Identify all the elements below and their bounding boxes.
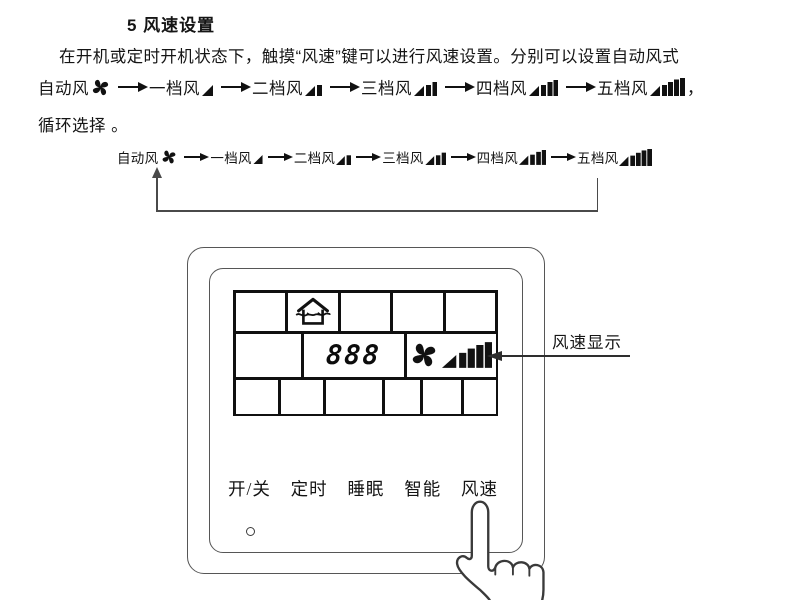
lcd-row-middle: 888 — [236, 334, 496, 377]
callout-arrowhead — [487, 351, 502, 361]
mode-label: 四档风 — [476, 75, 527, 99]
arrow-icon — [118, 86, 139, 88]
display-cell — [423, 380, 461, 414]
fan-speed-display-cell — [407, 334, 496, 377]
lcd-display-grid: 888 — [233, 290, 498, 416]
cycle-return-line-left — [156, 176, 158, 211]
arrow-icon — [451, 156, 468, 158]
arrow-icon — [566, 86, 587, 88]
mode-label: 三档风 — [382, 147, 423, 167]
mode-label: 自动风 — [117, 147, 158, 167]
mode-label: 二档风 — [294, 147, 335, 167]
cycle-diagram: 自动风 一档风 二档风 三档风 四档风 五档风 — [117, 146, 653, 168]
panel-button-timer: 定时 — [291, 476, 328, 501]
lcd-row-top — [236, 293, 496, 331]
callout-line — [501, 355, 630, 357]
cycle-return-line-bottom — [156, 210, 598, 212]
display-cell — [385, 380, 420, 414]
arrow-icon — [445, 86, 466, 88]
display-cell — [341, 293, 391, 331]
segment-digits: 888 — [325, 340, 382, 371]
mode-label: 一档风 — [210, 147, 251, 167]
wind-level-5-icon — [442, 342, 492, 368]
arrow-icon — [551, 156, 568, 158]
arrow-icon — [356, 156, 373, 158]
comma: ， — [687, 75, 704, 99]
house-airflow-icon — [295, 296, 331, 328]
arrow-icon — [184, 156, 201, 158]
wind-level-1-icon — [253, 150, 263, 164]
mode-label: 五档风 — [597, 75, 648, 99]
wind-level-1-icon — [202, 79, 213, 96]
wind-level-5-icon — [650, 78, 685, 96]
display-cell — [393, 293, 443, 331]
fan-icon — [410, 341, 438, 369]
segment-display-cell: 888 — [304, 334, 404, 377]
panel-button-power: 开/关 — [228, 476, 271, 501]
arrow-icon — [330, 86, 351, 88]
fan-speed-callout-label: 风速显示 — [552, 329, 622, 353]
display-cell — [464, 380, 496, 414]
fan-icon — [161, 149, 177, 165]
wind-level-2-icon — [336, 150, 351, 165]
display-cell — [236, 334, 301, 377]
wind-level-4-icon — [519, 149, 546, 165]
arrow-icon — [268, 156, 285, 158]
fan-icon — [91, 78, 110, 97]
wind-level-5-icon — [619, 148, 652, 167]
mode-label: 三档风 — [361, 75, 412, 99]
mode-label: 一档风 — [149, 75, 200, 99]
mode-label: 二档风 — [252, 75, 303, 99]
lcd-row-bottom — [236, 380, 496, 414]
display-cell — [326, 380, 382, 414]
mode-label: 五档风 — [577, 147, 618, 167]
display-cell — [236, 293, 286, 331]
panel-button-sleep: 睡眠 — [347, 476, 384, 501]
pointing-hand-icon — [441, 497, 559, 600]
paragraph-line3: 循环选择 。 — [38, 112, 128, 136]
manual-page: 5 风速设置 在开机或定时开机状态下，触摸“风速”键可以进行风速设置。分别可以设… — [0, 0, 790, 600]
wind-level-4-icon — [529, 79, 558, 96]
mode-label: 自动风 — [38, 75, 89, 99]
wind-level-3-icon — [414, 79, 437, 96]
wind-level-3-icon — [425, 150, 446, 165]
indicator-led — [246, 527, 255, 536]
display-cell — [281, 380, 323, 414]
display-cell — [236, 380, 279, 414]
section-title: 5 风速设置 — [127, 11, 215, 36]
mode-label: 四档风 — [477, 147, 518, 167]
display-cell — [288, 293, 338, 331]
paragraph-line2-flow: 自动风 一档风 二档风 三档风 四档风 五档风 ， — [38, 74, 704, 100]
cycle-return-line-right — [597, 178, 599, 211]
paragraph-line1: 在开机或定时开机状态下，触摸“风速”键可以进行风速设置。分别可以设置自动风式 — [59, 43, 679, 67]
panel-button-smart: 智能 — [404, 476, 441, 501]
wind-level-2-icon — [305, 79, 322, 96]
arrow-icon — [221, 86, 242, 88]
display-cell — [446, 293, 496, 331]
